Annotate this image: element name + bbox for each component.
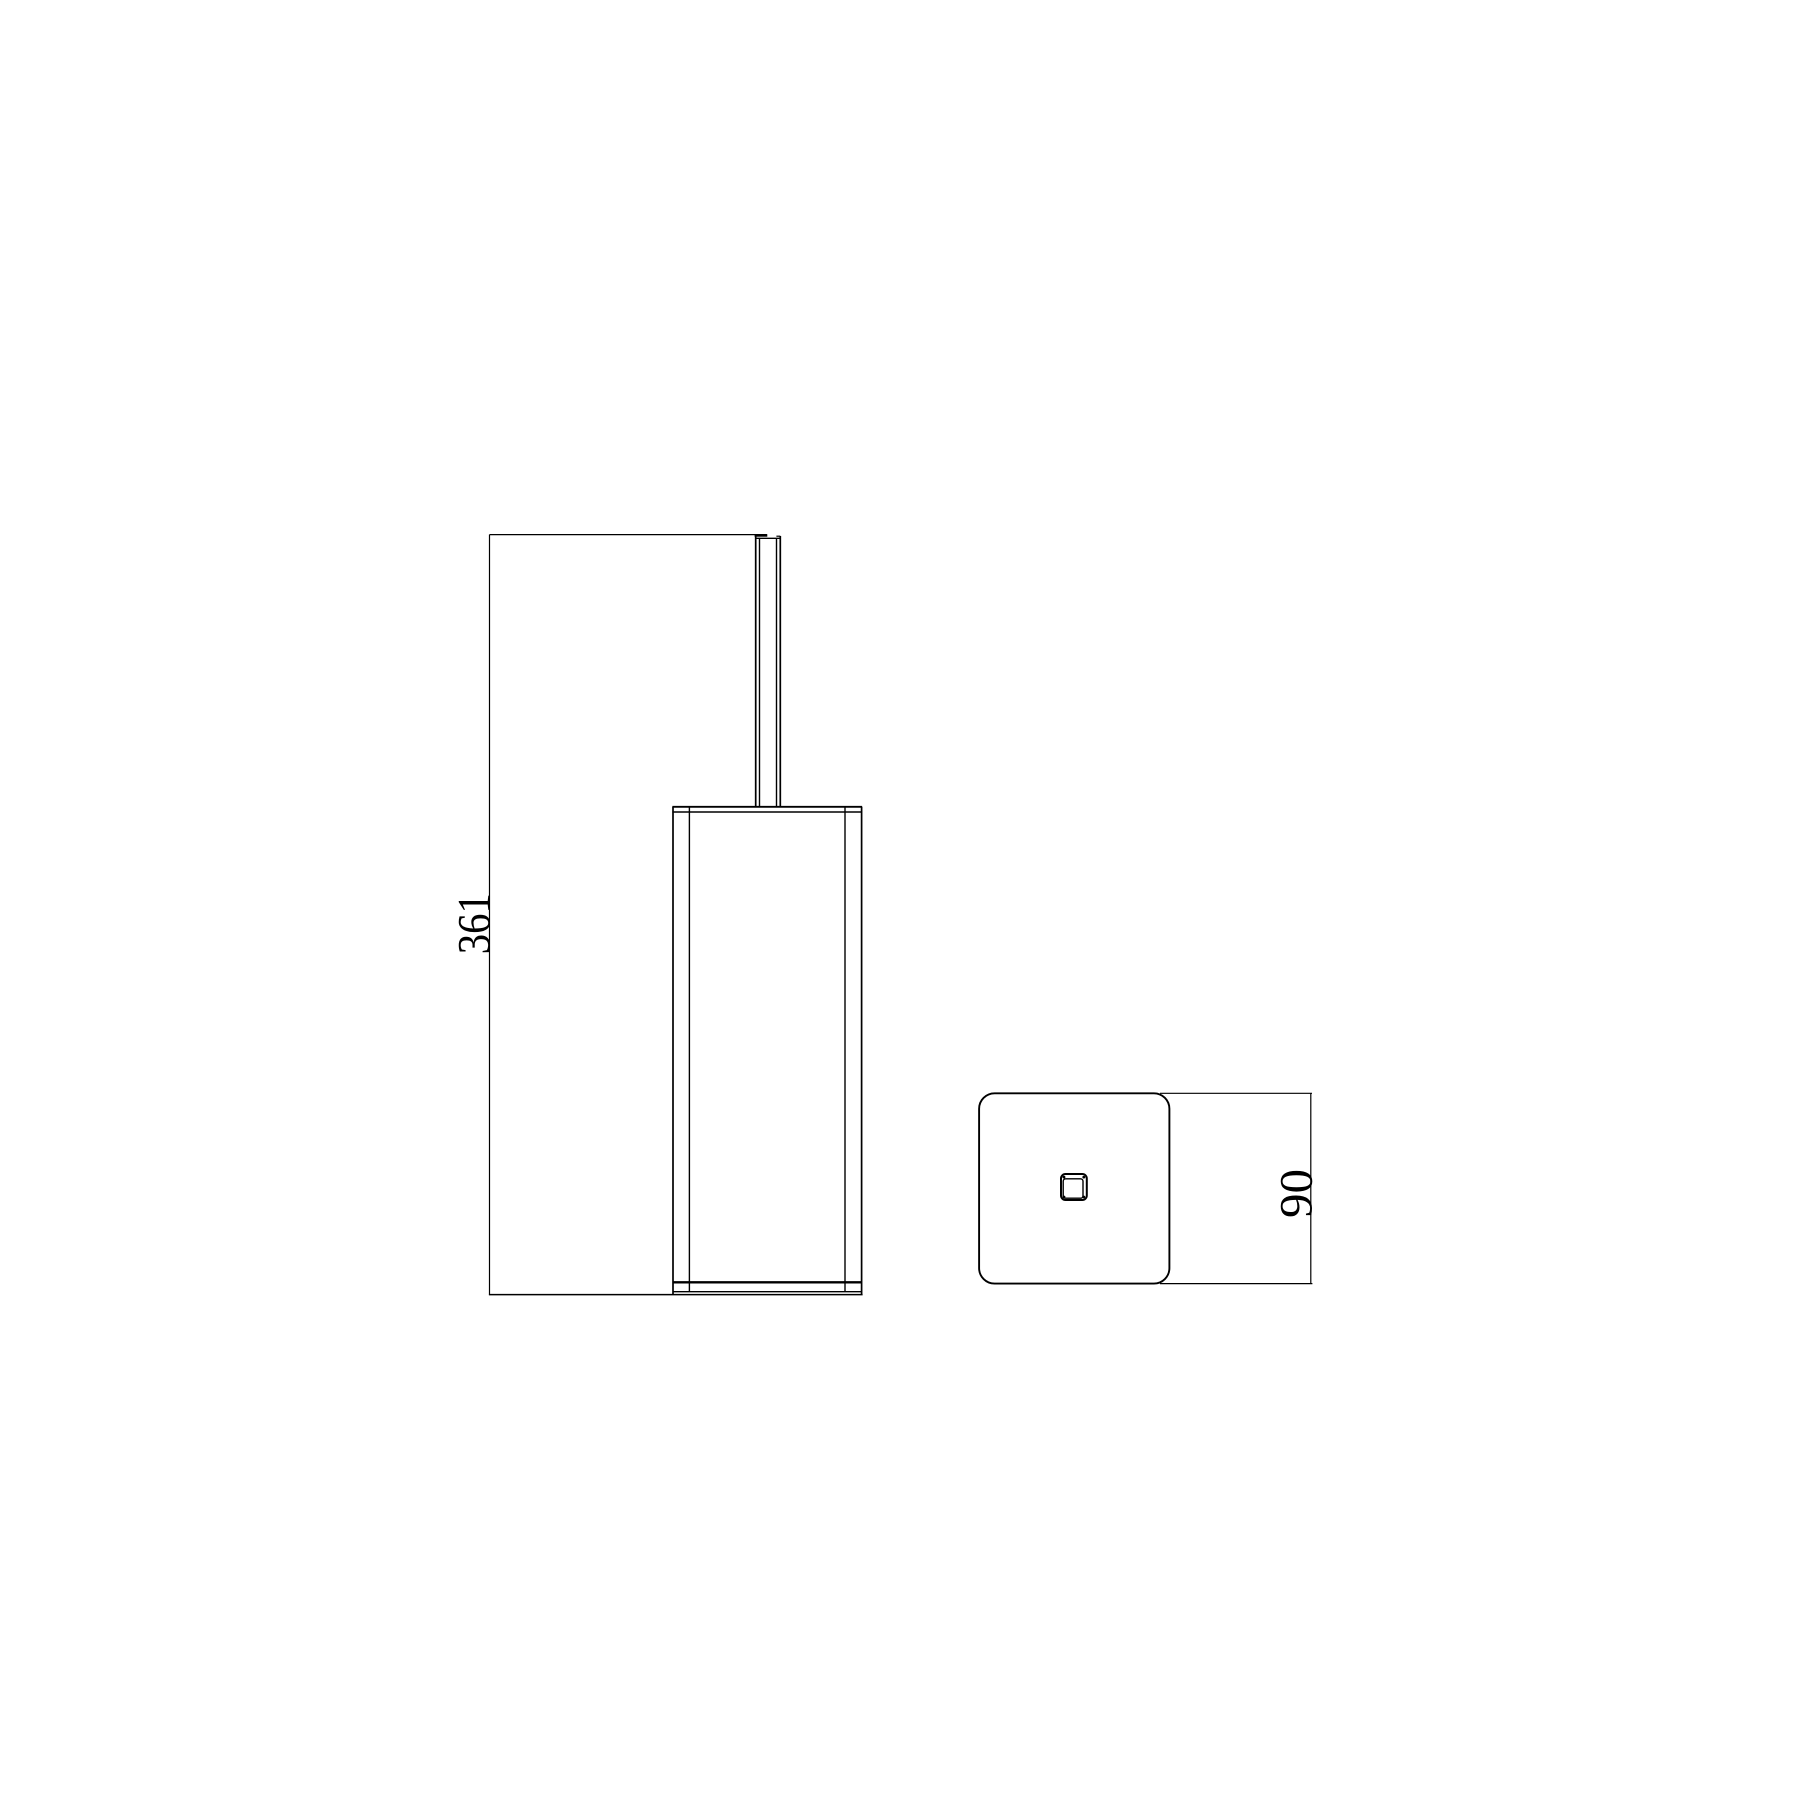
svg-text:90: 90 <box>1271 1169 1323 1218</box>
svg-text:361: 361 <box>449 893 501 954</box>
